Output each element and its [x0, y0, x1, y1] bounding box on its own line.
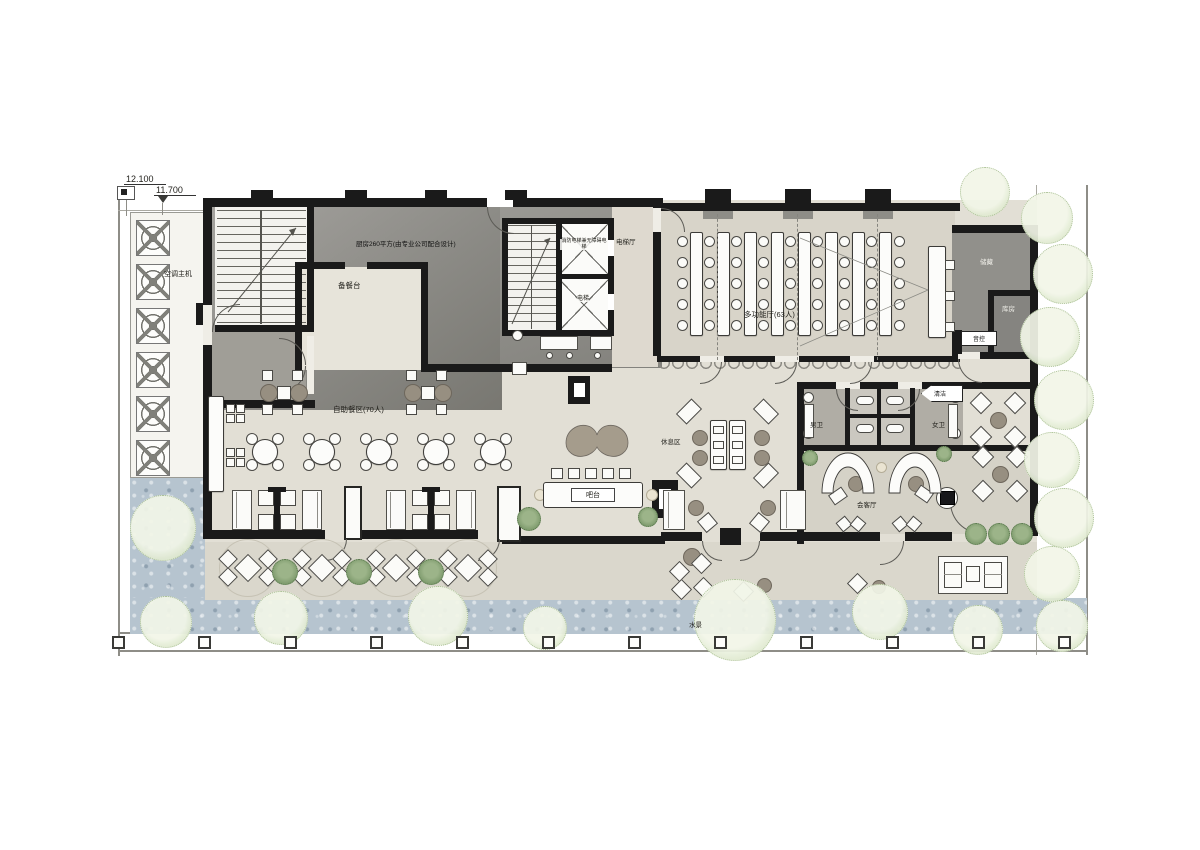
buffet-dish [226, 404, 235, 413]
banquet-chair [839, 257, 850, 268]
stair-rail [260, 210, 262, 324]
planter [646, 489, 658, 501]
level-marker-lower: 11.700 [156, 185, 183, 195]
banquet-table [771, 232, 784, 336]
lounge-seat [713, 441, 724, 449]
booth-seat [412, 490, 428, 506]
square-table [260, 384, 278, 402]
table-top [277, 386, 291, 400]
plan-geometry [0, 0, 1200, 850]
bar-stool [585, 468, 597, 479]
prep-room [302, 267, 421, 370]
banquet-chair [866, 278, 877, 289]
banquet-chair [731, 236, 742, 247]
decor-stone [512, 362, 527, 375]
buffet-dish [236, 404, 245, 413]
label-ac-unit: 空调主机 [164, 269, 192, 279]
entry-door-gap [203, 305, 212, 345]
banquet-chair [812, 320, 823, 331]
double-door-gap [307, 336, 314, 394]
banquet-chair [866, 236, 877, 247]
dining-chair [417, 433, 429, 445]
banquet-chair [677, 257, 688, 268]
dining-chair [272, 433, 284, 445]
level-triangle-icon [158, 196, 168, 203]
toilet [886, 396, 904, 405]
wc-counter [948, 404, 958, 438]
shrub [988, 523, 1010, 545]
chair [292, 370, 303, 381]
stair-rail [531, 225, 532, 329]
facade-wall [203, 530, 325, 539]
lounge-seat [713, 456, 724, 464]
facade-wall [905, 532, 952, 541]
booth-sofa [456, 490, 476, 530]
banquet-chair [812, 257, 823, 268]
banquet-chair [839, 320, 850, 331]
wall-wc-south [797, 445, 1038, 451]
chair [406, 404, 417, 415]
banquet-table [879, 232, 892, 336]
banquet-chair [785, 320, 796, 331]
banquet-chair [894, 236, 905, 247]
banquet-chair [677, 320, 688, 331]
window-bench [780, 490, 806, 530]
wall-shaft-divider [558, 274, 610, 279]
bar-stool [568, 468, 580, 479]
wall-core [502, 218, 508, 336]
column-grid-dash [797, 214, 798, 360]
elevator-shaft [558, 278, 610, 332]
tree [960, 167, 1010, 217]
balustrade-post [886, 636, 899, 649]
banquet-table [744, 232, 757, 336]
podium-chair [945, 260, 955, 270]
tree [1034, 488, 1094, 548]
dining-chair [303, 433, 315, 445]
booth-seat [280, 514, 296, 530]
lounge-seat [732, 426, 743, 434]
square-table [290, 384, 308, 402]
banquet-chair [731, 299, 742, 310]
label-kitchen: 厨房260平方(由专业公司配合设计) [356, 238, 456, 248]
elevator-door [608, 294, 614, 310]
balustrade-post [800, 636, 813, 649]
elevator-door [608, 240, 614, 256]
hall-column-cap [863, 211, 893, 219]
balustrade-rail [118, 650, 1087, 652]
column-grid-dash [717, 214, 718, 360]
booth-table-cap [422, 487, 440, 492]
fixture [546, 352, 553, 359]
banquet-chair [812, 299, 823, 310]
ac-fan-unit [136, 308, 170, 344]
booth-sofa [232, 490, 252, 530]
booth-table-cap [268, 487, 286, 492]
floor-plan: 12.100 11.700 空调主机 厨房260平方(由专业公司配合设计) 备餐… [0, 0, 1200, 850]
facade-column-bump [505, 190, 527, 200]
bar-stool [619, 468, 631, 479]
shrub [346, 559, 372, 585]
banquet-chair [839, 299, 850, 310]
audio-control-label: 音控 [973, 334, 985, 343]
side-table [760, 500, 776, 516]
banquet-chair [812, 236, 823, 247]
dining-chair [417, 459, 429, 471]
dining-chair [386, 433, 398, 445]
facade-column [720, 528, 741, 545]
facade-wall [760, 532, 880, 541]
banquet-chair [704, 299, 715, 310]
chair [436, 370, 447, 381]
hall-column-cap [703, 211, 733, 219]
balustrade-post [456, 636, 469, 649]
chair [262, 370, 273, 381]
lounge-seat [713, 426, 724, 434]
banquet-chair [677, 236, 688, 247]
lounge-seat [732, 456, 743, 464]
buffet-counter [208, 396, 224, 492]
chair [436, 404, 447, 415]
facade-wall [347, 530, 478, 539]
shrub [418, 559, 444, 585]
pouf [692, 430, 708, 446]
banquet-chair [866, 299, 877, 310]
shrub [517, 507, 541, 531]
bar-counter: 吧台 [543, 482, 643, 508]
sink [803, 392, 814, 403]
balustrade-post [714, 636, 727, 649]
wall-hall-north [657, 203, 960, 211]
dining-chair [500, 459, 512, 471]
hall-column-cap [783, 211, 813, 219]
label-elevator-hall: 电梯厅 [616, 236, 636, 246]
label-lounge: 休息区 [661, 436, 681, 446]
label-water-feature: 水景 [689, 619, 702, 629]
tree [130, 495, 196, 561]
pouf [754, 430, 770, 446]
hall-column [705, 189, 731, 204]
banquet-chair [704, 236, 715, 247]
balustrade-post [284, 636, 297, 649]
buffet-dish [236, 414, 245, 423]
table-top [421, 386, 435, 400]
banquet-table [717, 232, 730, 336]
wall-prep-east [421, 262, 428, 370]
label-hall: 多功能厅(63人) [744, 309, 795, 320]
banquet-chair [785, 236, 796, 247]
ac-fan-unit [136, 352, 170, 388]
banquet-chair [866, 320, 877, 331]
stair-treads [508, 225, 556, 329]
outdoor-coffee-table [966, 566, 980, 582]
tree [1024, 546, 1080, 602]
booth-sofa [386, 490, 406, 530]
tree [1024, 432, 1080, 488]
dining-chair [443, 433, 455, 445]
bar-label: 吧台 [571, 488, 615, 502]
dining-chair [474, 459, 486, 471]
wall-prep-north [367, 262, 428, 269]
banquet-table [852, 232, 865, 336]
tree [1021, 192, 1073, 244]
dining-chair [272, 459, 284, 471]
booth-sofa [302, 490, 322, 530]
window-bench [663, 490, 685, 530]
level-marker-upper: 12.100 [126, 174, 154, 184]
label-storage: 储藏 [980, 256, 993, 266]
level-triangle-pole [162, 203, 163, 215]
banquet-chair [758, 278, 769, 289]
shrub [272, 559, 298, 585]
dining-chair [500, 433, 512, 445]
buffet-dish [226, 448, 235, 457]
ac-fan-unit [136, 396, 170, 432]
podium-chair [945, 291, 955, 301]
square-table [404, 384, 422, 402]
balustrade-post [1058, 636, 1071, 649]
pool-edge-wall [502, 536, 665, 544]
balustrade-post [628, 636, 641, 649]
tree [1020, 307, 1080, 367]
level-flag-pole [126, 200, 127, 216]
cushion-line [944, 574, 962, 575]
balustrade-post [112, 636, 125, 649]
banquet-chair [731, 278, 742, 289]
label-buffet: 自助餐区(70人) [333, 404, 384, 415]
hall-column [785, 189, 811, 204]
booth-seat [258, 490, 274, 506]
lobby-door-gap [653, 208, 661, 232]
sofa-cushion [944, 562, 962, 588]
dining-chair [329, 459, 341, 471]
audio-control-room: 音控 [961, 331, 997, 346]
wall-stair-east [307, 207, 314, 332]
shrub [638, 507, 658, 527]
service-cabinet [540, 336, 578, 350]
banquet-table [798, 232, 811, 336]
sofa-cushion [984, 562, 1002, 588]
shrub [802, 450, 818, 466]
pouf [692, 450, 708, 466]
balustrade-post [542, 636, 555, 649]
bench-line [786, 492, 787, 528]
banquet-chair [704, 278, 715, 289]
toilet [856, 424, 874, 433]
banquet-chair [758, 320, 769, 331]
pouf [754, 450, 770, 466]
facade-wall [661, 532, 702, 541]
door-leaf [196, 303, 203, 325]
facade-pillar [344, 486, 362, 540]
bench-line [668, 492, 669, 528]
lounge-seat [732, 441, 743, 449]
tree [1034, 370, 1094, 430]
label-elevator: 电梯 [577, 293, 589, 302]
square-table [434, 384, 452, 402]
dining-chair [246, 459, 258, 471]
wall-prep-north [295, 262, 345, 269]
buffet-dish [226, 414, 235, 423]
cushion-line [984, 574, 1002, 575]
shrub [936, 446, 952, 462]
banquet-chair [731, 257, 742, 268]
shrub [965, 523, 987, 545]
booth-sofa-line [236, 492, 237, 528]
dining-chair [360, 459, 372, 471]
fixture [566, 352, 573, 359]
podium-chair [945, 322, 955, 332]
banquet-chair [812, 278, 823, 289]
booth-seat [412, 514, 428, 530]
facade-column-bump [345, 190, 367, 200]
banquet-chair [785, 257, 796, 268]
bar-stool [602, 468, 614, 479]
site-boundary-line [118, 200, 120, 656]
balustrade-post [370, 636, 383, 649]
bar-stool [551, 468, 563, 479]
buffet-dish [226, 458, 235, 467]
podium-table [928, 246, 946, 338]
dining-chair [246, 433, 258, 445]
dining-chair [474, 433, 486, 445]
banquet-chair [894, 299, 905, 310]
shrub [1011, 523, 1033, 545]
banquet-chair [758, 257, 769, 268]
banquet-chair [677, 278, 688, 289]
banquet-chair [731, 320, 742, 331]
banquet-table [690, 232, 703, 336]
facade-column-bump [251, 190, 273, 200]
buffet-dish [236, 458, 245, 467]
tree [1033, 244, 1093, 304]
booth-sofa-line [471, 492, 472, 528]
banquet-chair [758, 236, 769, 247]
dining-chair [443, 459, 455, 471]
facade-column-bump [425, 190, 447, 200]
booth-table [274, 490, 280, 530]
dining-chair [329, 433, 341, 445]
round-table [848, 476, 864, 492]
label-mens-wc: 男卫 [810, 419, 823, 429]
toilet [856, 396, 874, 405]
chair [292, 404, 303, 415]
booth-sofa-line [317, 492, 318, 528]
hall-column [865, 189, 891, 204]
elevator-lobby [612, 207, 658, 367]
banquet-chair [894, 278, 905, 289]
banquet-chair [839, 236, 850, 247]
banquet-table [825, 232, 838, 336]
banquet-chair [704, 257, 715, 268]
booth-sofa-line [390, 492, 391, 528]
level-underline [124, 184, 166, 185]
service-cabinet [590, 336, 612, 350]
banquet-chair [704, 320, 715, 331]
dining-chair [303, 459, 315, 471]
chair [406, 370, 417, 381]
chair [262, 404, 273, 415]
banquet-chair [839, 278, 850, 289]
wall-storeroom [988, 290, 1036, 296]
balustrade-post [972, 636, 985, 649]
ac-fan-unit [136, 220, 170, 256]
banquet-chair [866, 257, 877, 268]
cleaning-label: 清洁 [934, 389, 946, 398]
black-table [940, 491, 955, 505]
banquet-chair [894, 320, 905, 331]
fixture [594, 352, 601, 359]
label-womens-wc: 女卫 [932, 419, 945, 429]
booth-seat [258, 514, 274, 530]
label-prep-counter: 备餐台 [338, 280, 361, 291]
side-table [688, 500, 704, 516]
tree [140, 596, 192, 648]
balustrade-post [198, 636, 211, 649]
dining-chair [360, 433, 372, 445]
label-fire-elevator: 消防电梯兼无障碍电梯 [560, 239, 608, 250]
ac-fan-unit [136, 440, 170, 476]
banquet-chair [677, 299, 688, 310]
mop-sink [512, 330, 523, 341]
banquet-chair [894, 257, 905, 268]
tree [254, 591, 308, 645]
toilet [886, 424, 904, 433]
label-storeroom: 库房 [1002, 303, 1015, 313]
column-core [574, 383, 585, 397]
banquet-chair [785, 278, 796, 289]
tree [852, 584, 908, 640]
booth-seat [434, 490, 450, 506]
planter [876, 462, 887, 473]
booth-table [428, 490, 434, 530]
outdoor-table [990, 412, 1007, 429]
tree [694, 579, 776, 661]
outdoor-table [992, 466, 1009, 483]
label-reception: 会客厅 [857, 499, 877, 509]
column-grid-dash [877, 214, 878, 360]
dining-chair [386, 459, 398, 471]
booth-seat [434, 514, 450, 530]
wall-stall-divider [847, 414, 910, 418]
level-flag-dot [121, 189, 127, 195]
buffet-dish [236, 448, 245, 457]
booth-seat [280, 490, 296, 506]
